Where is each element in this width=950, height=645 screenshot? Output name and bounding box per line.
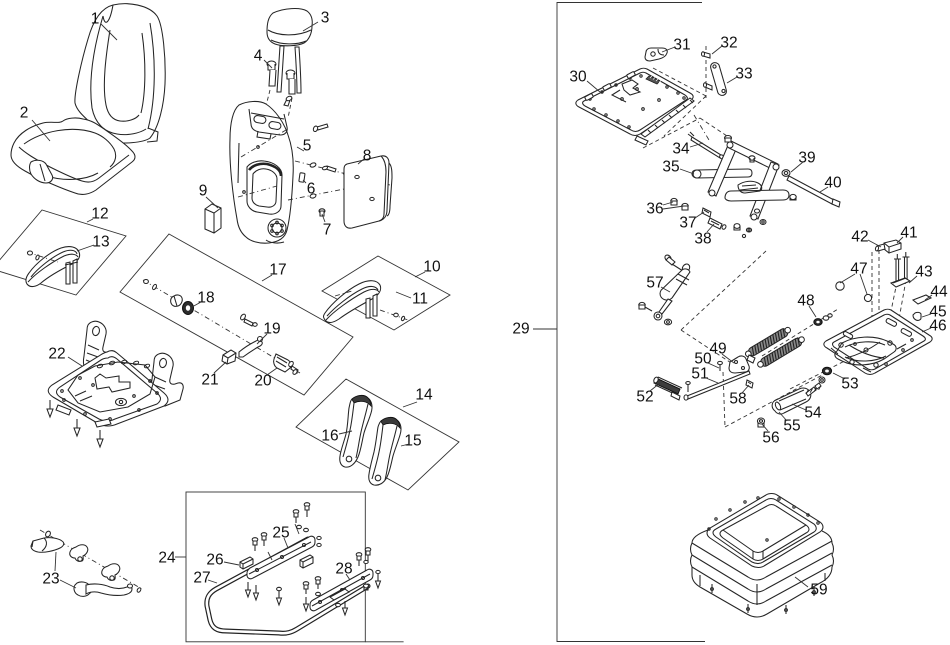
svg-text:29: 29 — [512, 321, 529, 338]
svg-text:46: 46 — [929, 318, 946, 335]
svg-text:36: 36 — [646, 201, 663, 218]
svg-text:22: 22 — [48, 346, 65, 363]
svg-text:27: 27 — [193, 570, 210, 587]
svg-text:54: 54 — [804, 405, 822, 422]
svg-text:12: 12 — [91, 206, 108, 223]
svg-text:5: 5 — [303, 138, 312, 155]
svg-text:58: 58 — [729, 391, 746, 408]
svg-text:34: 34 — [672, 141, 690, 158]
svg-text:15: 15 — [404, 433, 421, 450]
svg-text:44: 44 — [930, 284, 948, 301]
svg-text:2: 2 — [20, 105, 29, 122]
svg-text:51: 51 — [691, 366, 708, 383]
svg-text:30: 30 — [569, 69, 587, 86]
svg-text:40: 40 — [824, 175, 842, 192]
svg-text:7: 7 — [323, 222, 332, 239]
svg-text:4: 4 — [254, 48, 263, 65]
svg-text:32: 32 — [720, 35, 737, 52]
svg-text:28: 28 — [335, 561, 352, 578]
svg-text:9: 9 — [199, 183, 208, 200]
svg-text:17: 17 — [269, 262, 286, 279]
svg-text:31: 31 — [673, 37, 690, 54]
svg-text:38: 38 — [694, 231, 711, 248]
svg-text:57: 57 — [646, 275, 663, 292]
svg-text:26: 26 — [206, 552, 223, 569]
svg-text:48: 48 — [797, 293, 814, 310]
svg-text:13: 13 — [92, 234, 109, 251]
svg-text:33: 33 — [735, 66, 752, 83]
svg-text:14: 14 — [415, 387, 433, 404]
svg-text:52: 52 — [636, 389, 653, 406]
svg-text:1: 1 — [91, 11, 100, 28]
svg-text:18: 18 — [197, 290, 214, 307]
svg-text:56: 56 — [762, 430, 779, 447]
svg-text:25: 25 — [272, 525, 289, 542]
svg-text:37: 37 — [679, 215, 696, 232]
svg-text:59: 59 — [810, 582, 827, 599]
svg-text:8: 8 — [363, 148, 372, 165]
svg-text:6: 6 — [307, 181, 316, 198]
svg-text:42: 42 — [851, 229, 868, 246]
svg-text:49: 49 — [709, 341, 726, 358]
svg-text:41: 41 — [900, 225, 917, 242]
svg-text:43: 43 — [915, 264, 932, 281]
svg-text:21: 21 — [201, 372, 218, 389]
svg-text:3: 3 — [321, 10, 330, 27]
svg-text:20: 20 — [254, 373, 272, 390]
svg-text:35: 35 — [662, 159, 679, 176]
svg-text:16: 16 — [321, 428, 338, 445]
svg-text:24: 24 — [158, 550, 176, 567]
svg-text:10: 10 — [423, 259, 441, 276]
svg-text:11: 11 — [412, 291, 428, 308]
svg-text:23: 23 — [42, 571, 59, 588]
